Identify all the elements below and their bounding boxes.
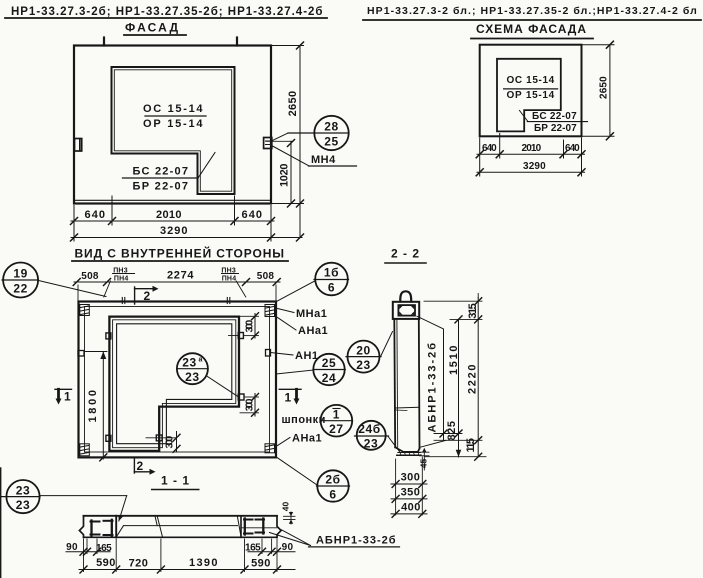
svg-text:АБНР1-33-2б: АБНР1-33-2б [316,535,396,547]
svg-text:40: 40 [281,502,291,512]
svg-text:640: 640 [85,209,106,221]
svg-text:23: 23 [364,437,379,451]
svg-text:115: 115 [465,438,477,453]
svg-text:508: 508 [257,271,275,282]
svg-text:90: 90 [282,542,294,553]
svg-text:165: 165 [245,543,261,554]
svg-text:20: 20 [356,343,371,357]
svg-text:2650: 2650 [287,90,299,116]
svg-text:25: 25 [324,134,339,148]
svg-text:1-1: 1-1 [161,474,191,488]
svg-text:300: 300 [165,435,176,448]
svg-text:6: 6 [328,280,335,294]
svg-text:23: 23 [16,483,31,497]
svg-text:165: 165 [96,543,112,554]
svg-text:22: 22 [13,281,28,295]
svg-text:2650: 2650 [599,76,610,99]
svg-text:1б: 1б [324,266,339,280]
svg-text:МНа1: МНа1 [296,308,327,320]
svg-text:3290: 3290 [160,225,188,237]
svg-text:23: 23 [182,355,197,369]
svg-text:315: 315 [467,303,479,319]
svg-text:АНа1: АНа1 [292,433,322,445]
svg-text:ПН4: ПН4 [222,276,237,283]
svg-text:300: 300 [401,472,421,484]
svg-text:640: 640 [482,143,497,154]
svg-text:СХЕМА ФАСАДА: СХЕМА ФАСАДА [476,22,588,36]
svg-text:АН1: АН1 [295,350,319,362]
svg-text:300: 300 [244,319,255,332]
svg-text:2010: 2010 [156,209,182,221]
svg-text:23: 23 [185,370,200,384]
svg-text:2: 2 [137,459,144,473]
svg-text:45: 45 [418,459,428,469]
svg-text:23: 23 [16,498,31,512]
svg-text:МН4: МН4 [311,154,336,166]
svg-text:ОС 15-14: ОС 15-14 [507,75,555,86]
svg-text:1: 1 [333,407,340,421]
svg-text:825: 825 [446,421,458,441]
svg-text:3290: 3290 [523,161,546,172]
svg-text:590: 590 [251,558,271,570]
svg-text:24б: 24б [358,422,381,436]
svg-text:28: 28 [324,120,339,134]
svg-text:24: 24 [322,371,337,385]
svg-text:НР1-33.27.3-2б; НР1-33.27.35-2: НР1-33.27.3-2б; НР1-33.27.35-2б; НР1-33.… [11,6,323,18]
svg-text:а: а [199,357,203,364]
svg-text:ФАСАД: ФАСАД [125,21,181,35]
svg-text:АБНР1-33-2б: АБНР1-33-2б [427,343,439,433]
svg-text:25: 25 [322,356,337,370]
svg-text:2220: 2220 [467,364,479,394]
svg-text:2274: 2274 [167,270,194,282]
svg-text:640: 640 [565,143,580,154]
svg-text:шпонки: шпонки [282,414,326,426]
svg-text:1: 1 [285,391,292,405]
svg-text:300: 300 [245,398,256,411]
svg-text:ВИД С ВНУТРЕННЕЙ СТОРОНЫ: ВИД С ВНУТРЕННЕЙ СТОРОНЫ [75,246,286,261]
svg-text:БР 22-07: БР 22-07 [534,123,577,134]
svg-text:ОР 15-14: ОР 15-14 [507,90,555,101]
svg-text:720: 720 [129,558,149,570]
svg-text:590: 590 [96,557,116,569]
svg-text:640: 640 [242,209,263,221]
svg-text:БС 22-07: БС 22-07 [532,111,577,122]
svg-text:400: 400 [401,502,421,514]
svg-text:ОР 15-14: ОР 15-14 [143,118,203,130]
svg-text:23: 23 [356,358,371,372]
svg-text:6: 6 [329,487,336,501]
svg-text:2-2: 2-2 [391,247,421,261]
svg-text:27: 27 [329,422,344,436]
svg-text:350: 350 [401,487,421,499]
svg-text:2б: 2б [325,473,340,487]
svg-text:ОС 15-14: ОС 15-14 [143,103,203,115]
svg-text:1390: 1390 [189,557,218,569]
svg-text:БС 22-07: БС 22-07 [133,166,189,178]
svg-text:ПН4: ПН4 [114,276,129,283]
svg-text:1510: 1510 [448,345,460,375]
svg-text:19: 19 [13,267,28,281]
svg-text:АНа1: АНа1 [298,325,328,337]
svg-text:2: 2 [144,289,151,303]
svg-text:1: 1 [64,390,71,404]
svg-text:1020: 1020 [279,163,291,187]
svg-text:90: 90 [66,542,78,553]
svg-text:БР 22-07: БР 22-07 [133,181,189,193]
svg-text:508: 508 [81,271,99,282]
svg-text:2010: 2010 [522,143,542,154]
svg-text:НР1-33.27.3-2 бл.; НР1-33.27.3: НР1-33.27.3-2 бл.; НР1-33.27.35-2 бл.;НР… [367,5,697,17]
